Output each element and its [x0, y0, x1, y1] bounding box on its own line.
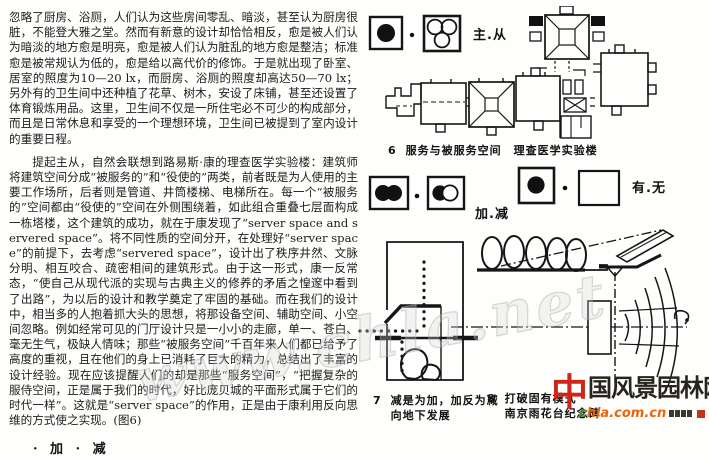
chla-site-logo: 中 国风景园林网 chla.com.cn: [551, 375, 709, 421]
figure-6-number: 6: [388, 143, 397, 158]
have-none-symbols-icon: [516, 164, 624, 208]
legend-have-none: 有.无: [516, 164, 666, 208]
figure-6-caption: 6 服务与被服务空间 理查医学实验楼: [388, 143, 598, 158]
logo-url-text: chla.com.cn: [579, 406, 666, 421]
figure-7-caption: 7 减是为加，加反为减 向地下发展: [373, 393, 499, 423]
figure-7-caption-text: 减是为加，加反为减 向地下发展: [391, 393, 499, 423]
add-subtract-symbols-icon: [367, 174, 467, 216]
figure-7-number: 7: [373, 393, 382, 423]
figure-7-caption-line2: 向地下发展: [391, 409, 451, 422]
figure-6-plan-drawing: [383, 6, 705, 140]
legend-have-none-label: 有.无: [632, 177, 666, 196]
scanned-book-page: 忽略了厨房、浴厕，人们认为这些房间零乱、暗淡，甚至认为厨房很脏，不能登大雅之堂。…: [0, 0, 709, 428]
logo-site-name: 国风景园林网: [588, 375, 709, 401]
article-paragraph-2: 提起主从，自然会联想到路易斯·康的理查医学实验楼：建筑师将建筑空间分成“被服务的…: [9, 155, 358, 429]
logo-red-seal-icon: [697, 410, 705, 418]
article-paragraph-1: 忽略了厨房、浴厕，人们认为这些房间零乱、暗淡，甚至认为厨房很脏，不能登大雅之堂。…: [9, 10, 358, 147]
article-text-column: 忽略了厨房、浴厕，人们认为这些房间零乱、暗淡，甚至认为厨房很脏，不能登大雅之堂。…: [9, 10, 358, 457]
logo-calligraphy-row: 中 国风景园林网: [551, 375, 709, 410]
section-heading-add-subtract: · 加 · 减: [9, 438, 358, 457]
figure-7-caption-line1: 减是为加，加反为减: [391, 394, 499, 407]
figure-8-number: 8: [487, 391, 496, 421]
memorial-plan-sketch-icon: [449, 224, 708, 394]
logo-url-row: chla.com.cn: [579, 406, 709, 421]
richards-lab-plan-icon: [383, 6, 705, 140]
logo-zhong-character: 中: [551, 375, 588, 410]
legend-add-subtract: 加.减: [367, 174, 509, 216]
legend-add-subtract-label: 加.减: [475, 203, 509, 222]
figure-8-sketch: [449, 224, 708, 394]
figure-6-caption-text: 服务与被服务空间 理查医学实验楼: [406, 143, 598, 158]
logo-tagline-marks: [669, 410, 692, 417]
